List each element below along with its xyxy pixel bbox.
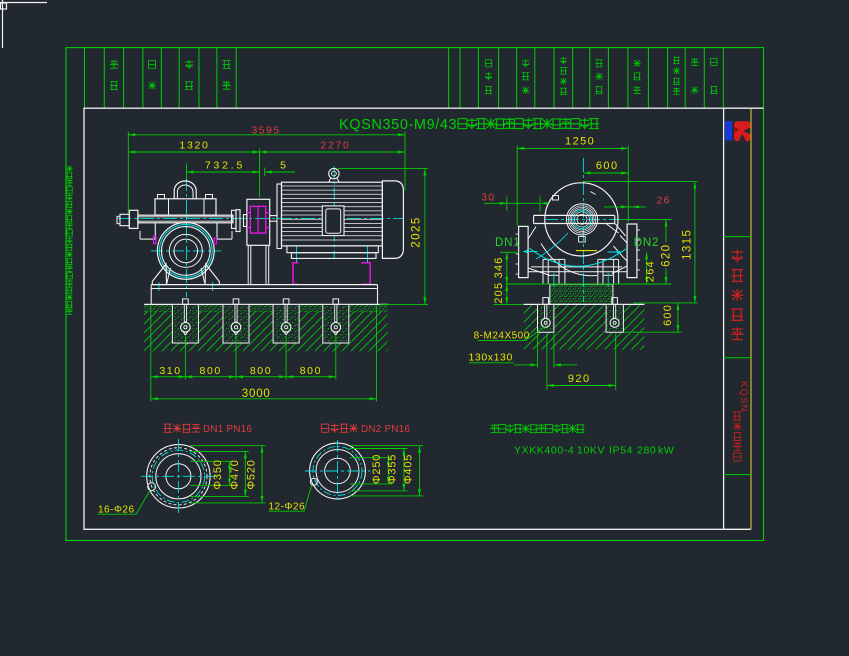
- svg-text:26: 26: [657, 195, 671, 207]
- svg-text:DN2: DN2: [634, 237, 659, 249]
- svg-text:346: 346: [493, 256, 505, 278]
- svg-text:732.5: 732.5: [205, 159, 245, 171]
- svg-text:1250: 1250: [565, 136, 595, 148]
- svg-text:205: 205: [493, 282, 505, 304]
- svg-text:600: 600: [662, 304, 674, 326]
- svg-text:1320: 1320: [179, 139, 209, 151]
- svg-text:3000: 3000: [242, 388, 271, 400]
- svg-text:800: 800: [200, 365, 222, 377]
- svg-text:KQSN: KQSN: [738, 381, 749, 413]
- svg-text:280: 280: [637, 445, 656, 457]
- svg-text:600: 600: [596, 160, 619, 172]
- svg-text:800: 800: [300, 365, 322, 377]
- svg-text:130x130: 130x130: [468, 352, 513, 364]
- svg-text:KQSN350-M9/43: KQSN350-M9/43: [339, 117, 457, 133]
- svg-text:1315: 1315: [682, 229, 694, 260]
- svg-text:DN1: DN1: [495, 237, 520, 249]
- svg-text:264: 264: [645, 260, 657, 282]
- svg-text:310: 310: [159, 365, 181, 377]
- svg-text:30: 30: [481, 192, 495, 204]
- svg-text:DN2 PN16: DN2 PN16: [361, 424, 410, 435]
- svg-text:IP54: IP54: [609, 445, 633, 457]
- svg-text:Φ520: Φ520: [246, 459, 258, 489]
- svg-text:3595: 3595: [252, 125, 281, 137]
- svg-text:620: 620: [660, 244, 672, 267]
- svg-text:Φ250: Φ250: [371, 454, 383, 484]
- svg-text:2270: 2270: [320, 139, 350, 151]
- svg-text:800: 800: [250, 365, 272, 377]
- svg-text:920: 920: [568, 373, 591, 385]
- svg-text:Φ350: Φ350: [212, 459, 224, 489]
- svg-text:DN1 PN16: DN1 PN16: [203, 424, 252, 435]
- svg-text:Φ470: Φ470: [229, 459, 241, 489]
- svg-text:YXKK400-4: YXKK400-4: [514, 445, 574, 457]
- svg-text:10KV: 10KV: [577, 445, 605, 457]
- svg-text:2025: 2025: [411, 216, 423, 248]
- svg-text:5: 5: [280, 159, 286, 171]
- svg-text:16-Φ26: 16-Φ26: [98, 504, 135, 515]
- svg-text:kW: kW: [658, 445, 674, 457]
- svg-text:Φ405: Φ405: [403, 454, 415, 484]
- svg-text:Φ355: Φ355: [387, 454, 399, 484]
